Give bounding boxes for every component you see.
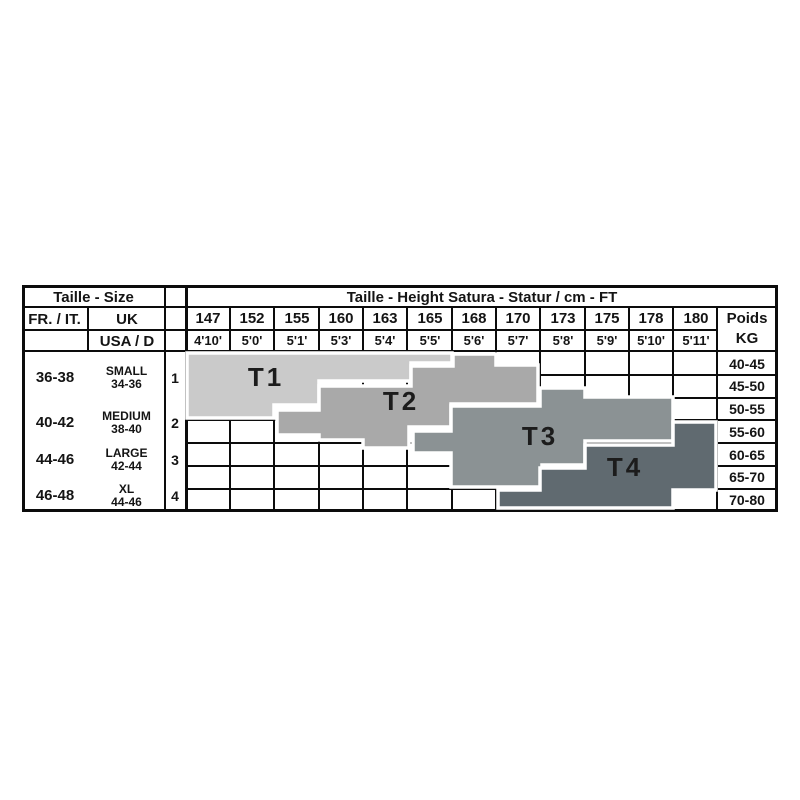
weight-range: 50-55 [718, 400, 776, 418]
height-cm: 180 [674, 309, 718, 329]
height-ft: 5'8' [541, 332, 585, 350]
height-cm: 160 [319, 309, 363, 329]
height-ft: 4'10' [186, 332, 230, 350]
corner-header: Taille - Size [22, 288, 165, 307]
height-cm: 152 [230, 309, 274, 329]
size-fr: 40-42 [24, 414, 86, 432]
weight-range: 45-50 [718, 377, 776, 395]
height-cm: 170 [496, 309, 540, 329]
band-label-t2: T2 [361, 386, 441, 417]
height-cm: 178 [629, 309, 673, 329]
size-index: 4 [165, 487, 185, 505]
height-ft: 5'5' [408, 332, 452, 350]
height-cm: 147 [186, 309, 230, 329]
weight-header-poids: Poids [718, 309, 776, 328]
height-cm: 168 [452, 309, 496, 329]
size-uk-range: 34-36 [111, 377, 142, 391]
size-fr: 46-48 [24, 487, 86, 505]
size-uk: LARGE42-44 [89, 447, 164, 473]
size-index: 1 [165, 369, 185, 387]
band-label-t1: T1 [226, 362, 306, 393]
size-uk-name: LARGE [106, 446, 148, 460]
size-chart: Taille - Size Taille - Height Satura - S… [0, 0, 800, 800]
size-uk-range: 38-40 [111, 422, 142, 436]
height-cm: 173 [541, 309, 585, 329]
height-ft: 5'0' [230, 332, 274, 350]
fr-it-header: FR. / IT. [22, 310, 87, 329]
uk-header: UK [89, 310, 165, 329]
weight-range: 55-60 [718, 423, 776, 441]
size-uk-name: SMALL [106, 364, 147, 378]
height-ft: 5'7' [496, 332, 540, 350]
size-uk: SMALL34-36 [89, 365, 164, 391]
weight-range: 70-80 [718, 491, 776, 509]
usa-d-header: USA / D [89, 332, 165, 351]
height-cm: 175 [585, 309, 629, 329]
size-uk-name: MEDIUM [102, 409, 151, 423]
size-uk-name: XL [119, 482, 134, 496]
size-index: 2 [165, 414, 185, 432]
band-label-t4: T4 [585, 452, 665, 483]
main-header: Taille - Height Satura - Statur / cm - F… [186, 288, 778, 307]
weight-range: 65-70 [718, 468, 776, 486]
height-ft: 5'11' [674, 332, 718, 350]
height-ft: 5'9' [585, 332, 629, 350]
size-uk-range: 44-46 [111, 495, 142, 509]
weight-range: 60-65 [718, 446, 776, 464]
band-label-t3: T3 [500, 421, 580, 452]
height-ft: 5'1' [275, 332, 319, 350]
size-uk: XL44-46 [89, 483, 164, 509]
height-ft: 5'6' [452, 332, 496, 350]
height-ft: 5'3' [319, 332, 363, 350]
size-fr: 44-46 [24, 451, 86, 469]
size-index: 3 [165, 451, 185, 469]
size-fr: 36-38 [24, 369, 86, 387]
height-cm: 155 [275, 309, 319, 329]
height-cm: 163 [363, 309, 407, 329]
size-uk-range: 42-44 [111, 459, 142, 473]
weight-range: 40-45 [718, 355, 776, 373]
weight-header-kg: KG [718, 329, 776, 348]
height-ft: 5'10' [629, 332, 673, 350]
height-cm: 165 [408, 309, 452, 329]
size-uk: MEDIUM38-40 [89, 410, 164, 436]
height-ft: 5'4' [363, 332, 407, 350]
